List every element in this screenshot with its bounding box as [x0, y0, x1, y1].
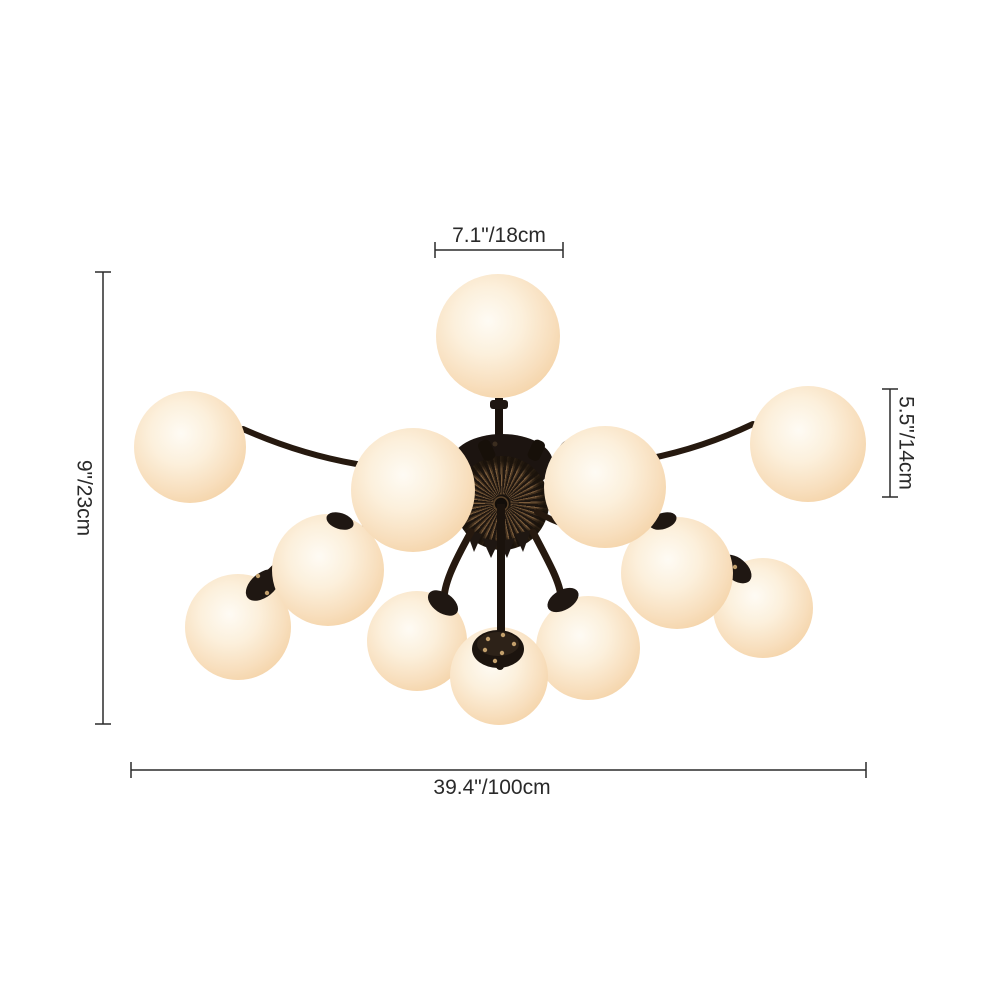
dimension-label-right: 5.5"/14cm [895, 396, 918, 490]
dimension-annotations: 7.1"/18cm 9"/23cm 5.5"/14cm 39.4"/100cm [0, 0, 1000, 1000]
product-dimension-diagram: 7.1"/18cm 9"/23cm 5.5"/14cm 39.4"/100cm [0, 0, 1000, 1000]
dimension-label-bottom: 39.4"/100cm [433, 776, 550, 799]
dimension-line-left [95, 272, 111, 724]
dimension-label-top: 7.1"/18cm [452, 224, 546, 247]
dimension-label-left: 9"/23cm [73, 460, 96, 536]
